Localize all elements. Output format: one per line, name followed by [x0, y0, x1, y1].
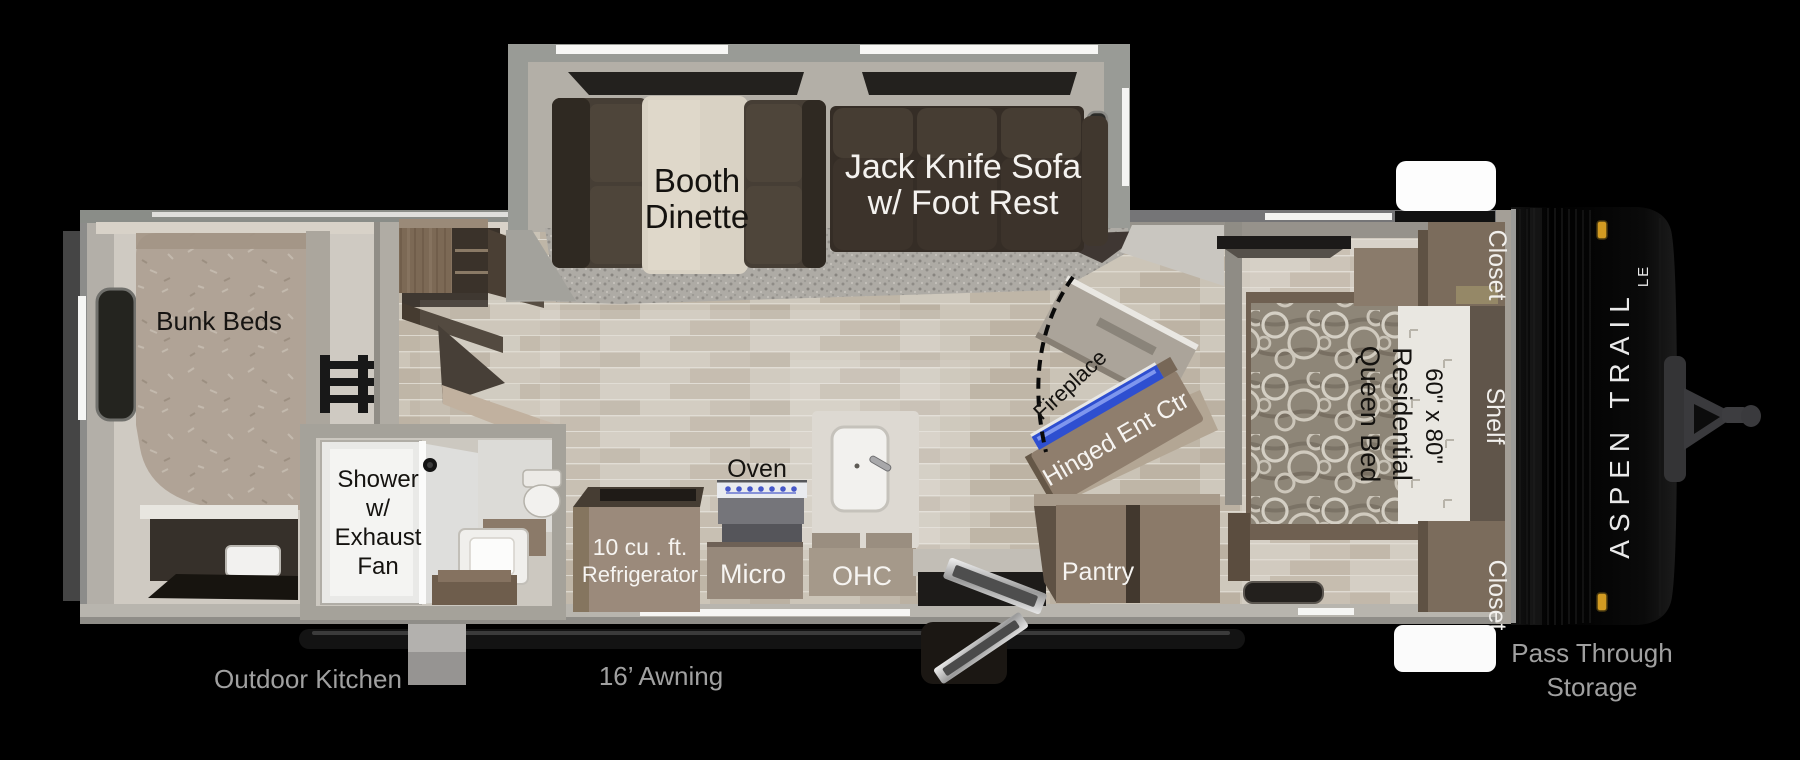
svg-text:Closet: Closet — [1483, 230, 1511, 301]
svg-text:Fan: Fan — [357, 553, 398, 580]
svg-text:Booth: Booth — [654, 162, 740, 199]
svg-text:Residential: Residential — [1387, 347, 1417, 481]
svg-text:Bunk Beds: Bunk Beds — [156, 306, 282, 336]
svg-text:60" x 80": 60" x 80" — [1420, 368, 1447, 464]
svg-text:Queen Bed: Queen Bed — [1355, 346, 1385, 483]
svg-text:Jack Knife Sofa: Jack Knife Sofa — [845, 148, 1081, 186]
svg-text:w/ Foot Rest: w/ Foot Rest — [867, 184, 1059, 222]
svg-text:Pass Through: Pass Through — [1511, 638, 1672, 668]
svg-text:ASPEN TRAIL: ASPEN TRAIL — [1604, 289, 1635, 559]
svg-text:w/: w/ — [365, 495, 390, 522]
svg-text:OHC: OHC — [832, 561, 892, 591]
svg-text:Dinette: Dinette — [645, 198, 750, 235]
svg-text:Storage: Storage — [1546, 672, 1637, 702]
svg-text:Exhaust: Exhaust — [335, 524, 422, 551]
svg-text:10 cu . ft.: 10 cu . ft. — [593, 534, 688, 560]
svg-text:Outdoor Kitchen: Outdoor Kitchen — [214, 664, 402, 694]
svg-text:Pantry: Pantry — [1062, 558, 1135, 586]
svg-text:Refrigerator: Refrigerator — [582, 562, 698, 587]
svg-text:Shelf: Shelf — [1481, 388, 1509, 445]
svg-text:Closet: Closet — [1483, 560, 1511, 631]
svg-text:Micro: Micro — [720, 559, 786, 589]
svg-text:Oven: Oven — [727, 455, 787, 483]
svg-text:LE: LE — [1635, 265, 1652, 287]
svg-text:16’ Awning: 16’ Awning — [599, 661, 723, 691]
svg-text:Shower: Shower — [337, 466, 418, 493]
